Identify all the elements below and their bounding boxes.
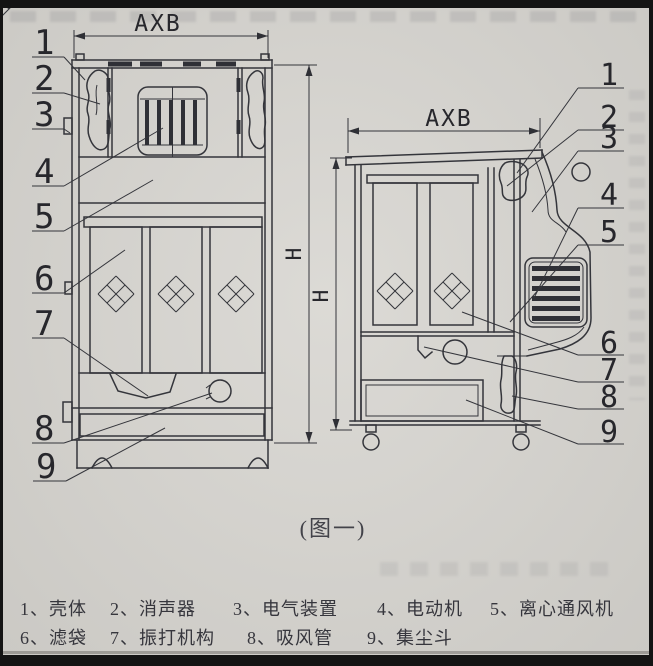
side-width-label: AXB bbox=[425, 106, 473, 132]
front-rapping-and-port bbox=[110, 374, 231, 402]
side-hopper bbox=[361, 380, 483, 421]
scan-border-left bbox=[0, 0, 3, 666]
outlet-duct-outer bbox=[527, 152, 591, 356]
foot-arch-right bbox=[248, 458, 268, 468]
legend-item-8: 8、吸风管 bbox=[247, 624, 333, 650]
legend-item-2: 2、消声器 bbox=[110, 595, 196, 621]
side-height-label: H bbox=[309, 290, 333, 303]
front-wall-latches bbox=[63, 118, 72, 422]
side-callout-8: 8 bbox=[600, 380, 618, 415]
legend-item-5: 5、离心通风机 bbox=[490, 595, 614, 621]
front-view: AXB bbox=[0, 0, 317, 487]
side-callout-9: 9 bbox=[600, 415, 618, 450]
side-width-dimension: AXB bbox=[348, 106, 540, 153]
electric-motor-front bbox=[138, 87, 207, 157]
front-height-label: H bbox=[282, 248, 306, 261]
scan-border-top bbox=[0, 0, 653, 8]
scanned-manual-page: { "figure": { "caption": "(图一)", "dim_wi… bbox=[0, 0, 653, 666]
tube-sheet bbox=[84, 217, 262, 227]
figure-caption: (图一) bbox=[278, 511, 388, 543]
legend-item-9: 9、集尘斗 bbox=[367, 624, 453, 650]
electric-motor-side bbox=[525, 258, 587, 327]
side-casters bbox=[363, 425, 529, 450]
side-middle-band bbox=[418, 336, 527, 413]
side-callout-leaders bbox=[424, 88, 624, 444]
scan-border-bottom bbox=[0, 655, 653, 666]
legend-item-3: 3、电气装置 bbox=[233, 595, 338, 621]
dust-collector-technical-drawing: AXB bbox=[0, 0, 653, 575]
roof-bolt-left bbox=[76, 54, 84, 60]
suction-pipe-port-front bbox=[209, 380, 231, 402]
front-callouts: 1 2 3 4 5 6 7 8 9 bbox=[32, 23, 212, 487]
front-top-chamber bbox=[79, 68, 265, 157]
foot-arch-left bbox=[92, 458, 112, 468]
side-shell bbox=[346, 150, 542, 425]
front-hopper bbox=[72, 408, 272, 468]
front-width-label: AXB bbox=[134, 11, 182, 37]
electrical-device-knob bbox=[572, 163, 590, 181]
side-height-dimension: H bbox=[309, 158, 352, 430]
front-width-dimension: AXB bbox=[74, 11, 268, 58]
scan-border-right bbox=[649, 0, 653, 666]
roof-vent-slots bbox=[108, 62, 236, 67]
rapping-mechanism-front bbox=[110, 374, 176, 398]
legend-item-4: 4、电动机 bbox=[377, 595, 463, 621]
front-height-dimension: H bbox=[274, 65, 317, 443]
legend-item-1: 1、壳体 bbox=[20, 595, 87, 621]
side-duct-and-motor bbox=[499, 152, 591, 356]
legend-item-7: 7、振打机构 bbox=[110, 624, 215, 650]
bag-plate bbox=[367, 175, 478, 183]
silencer-right bbox=[247, 71, 266, 149]
side-view: AXB bbox=[309, 58, 624, 450]
legend-item-6: 6、滤袋 bbox=[20, 624, 87, 650]
side-filter-bags bbox=[361, 168, 514, 336]
scan-fringe bbox=[0, 651, 653, 654]
